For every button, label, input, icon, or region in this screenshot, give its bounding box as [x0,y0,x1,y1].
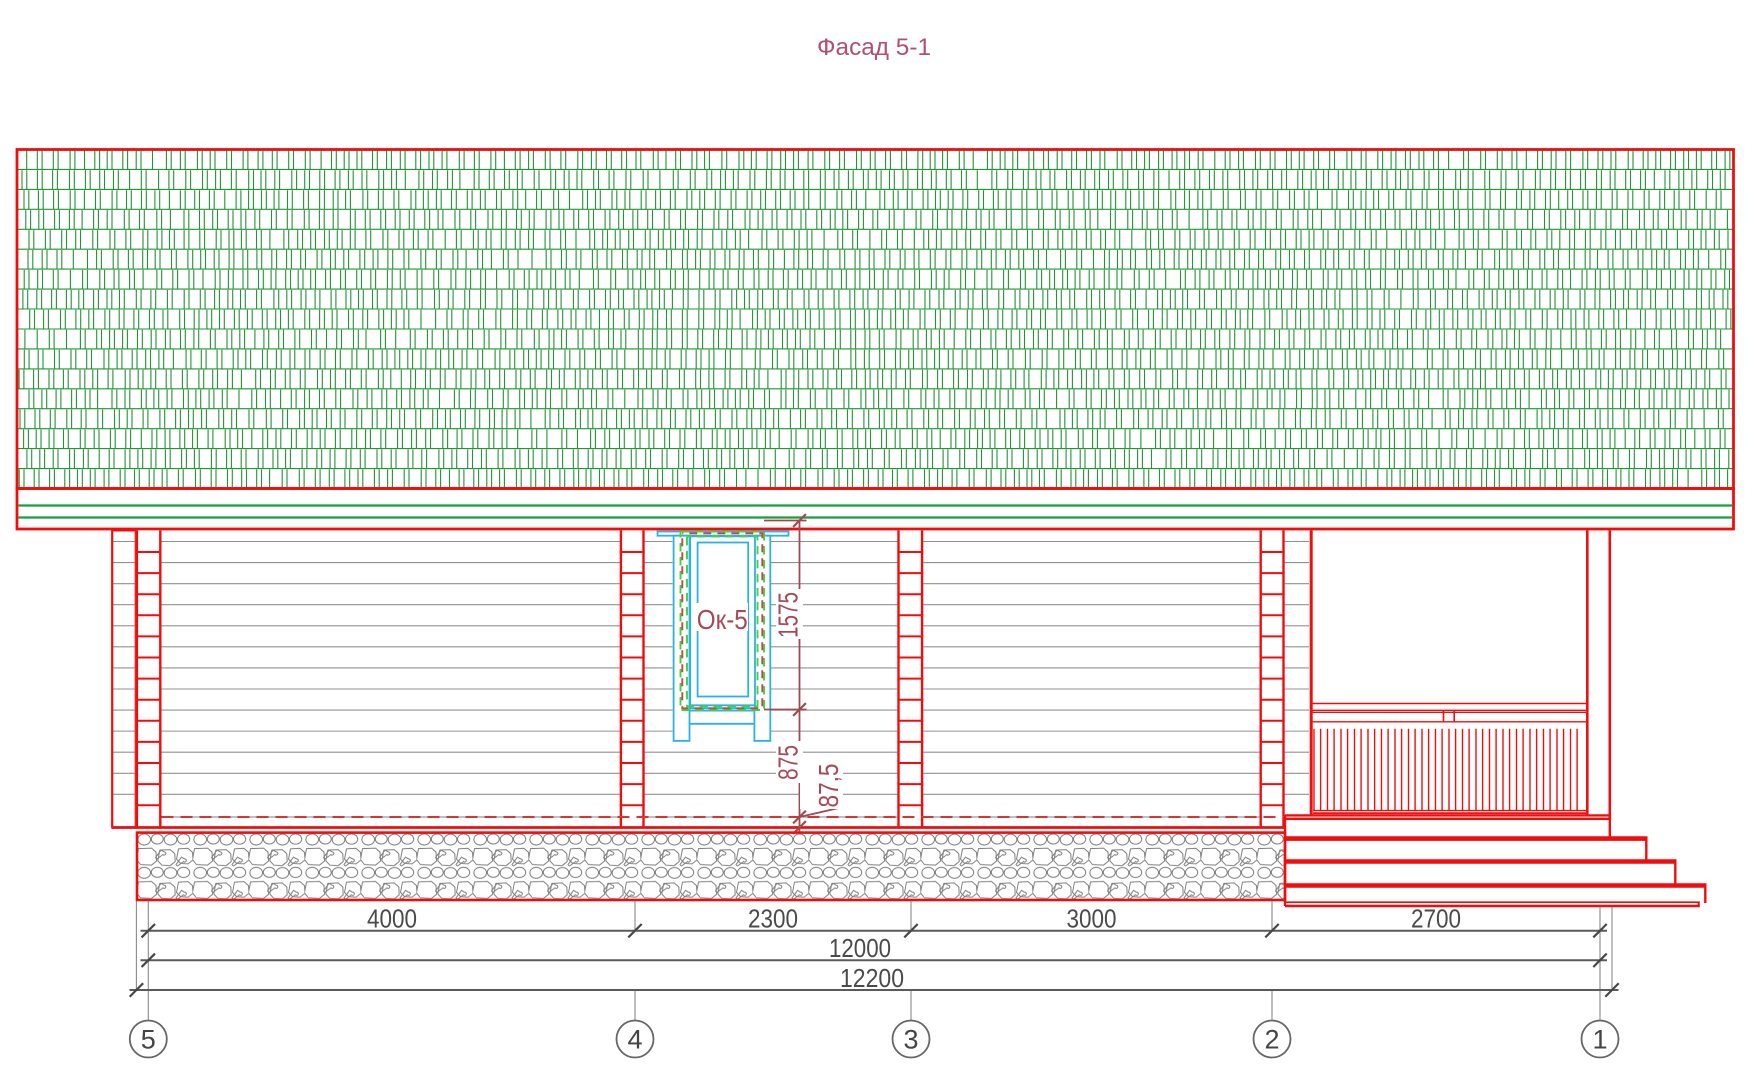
svg-text:12200: 12200 [840,963,904,993]
svg-text:Фасад 5-1: Фасад 5-1 [817,34,931,61]
svg-text:5: 5 [141,1024,156,1054]
svg-text:87,5: 87,5 [813,764,844,808]
svg-text:4000: 4000 [367,904,417,934]
svg-text:Ок-5: Ок-5 [697,604,748,635]
svg-text:3: 3 [903,1024,918,1054]
svg-text:12000: 12000 [829,933,891,963]
svg-text:3000: 3000 [1067,904,1117,934]
svg-text:2: 2 [1264,1024,1279,1054]
svg-text:2300: 2300 [748,904,798,934]
svg-text:1: 1 [1592,1024,1607,1054]
svg-text:1575: 1575 [773,592,804,638]
svg-text:2700: 2700 [1411,904,1461,934]
svg-text:875: 875 [773,745,804,780]
svg-text:4: 4 [627,1024,642,1054]
